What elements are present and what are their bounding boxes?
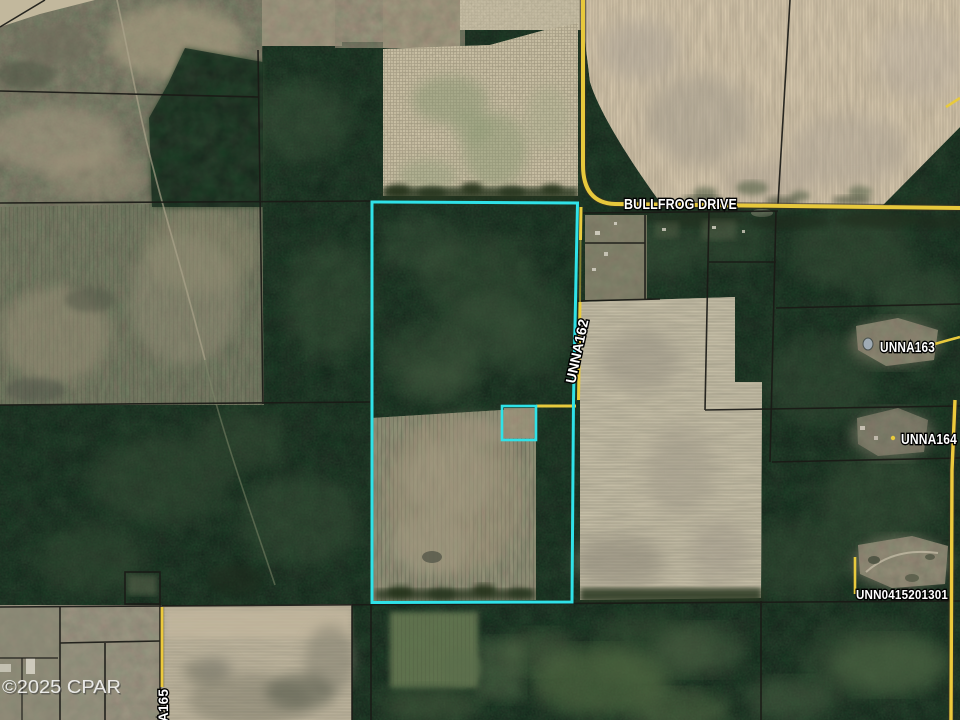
svg-text:BULLFROG DRIVE: BULLFROG DRIVE [624,196,737,213]
svg-text:UNN0415201301: UNN0415201301 [856,587,948,602]
svg-text:A165: A165 [156,689,171,720]
svg-text:©2025 CPAR: ©2025 CPAR [2,677,121,697]
svg-text:UNNA164: UNNA164 [901,432,957,448]
svg-text:UNNA163: UNNA163 [880,340,935,356]
